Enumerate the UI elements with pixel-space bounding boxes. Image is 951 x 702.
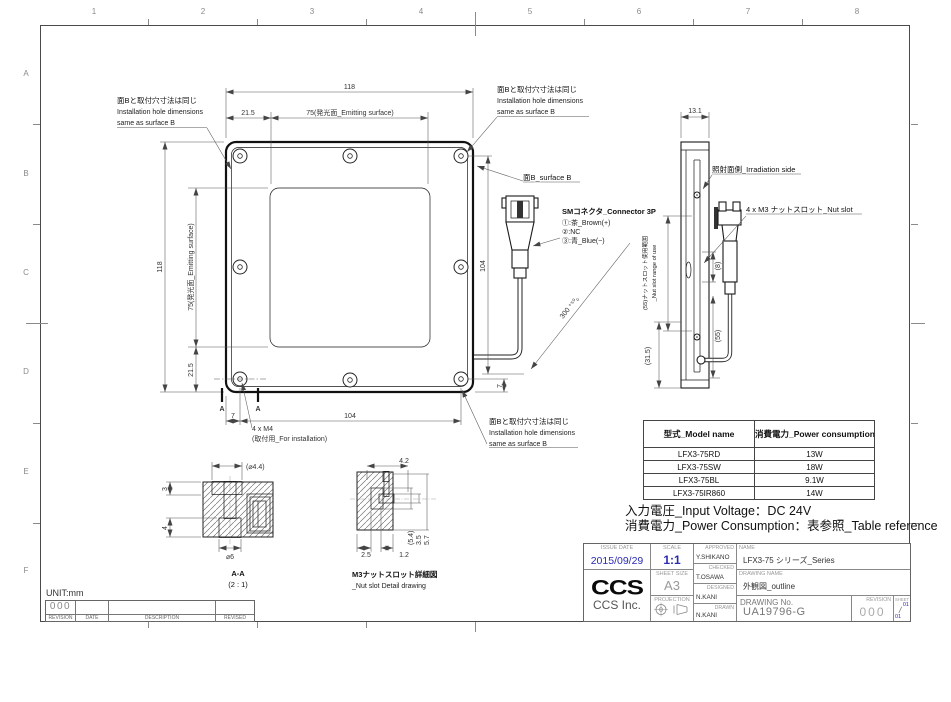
model-power-table: 型式_Model name 消費電力_Power consumption LFX… [643, 420, 875, 500]
aa-scale: (2 : 1) [228, 580, 248, 589]
revision-strip-labels: REVISION DATE DESCRIPTION REVISED [46, 615, 254, 622]
dim-height: 118 [157, 261, 164, 272]
connector-pin1: ①:茶_Brown(+) [562, 218, 610, 227]
title-block: ISSUE DATE 2015/09/29 CCS CCS Inc. SCALE… [583, 543, 911, 622]
input-voltage-note: 入力電圧_Input Voltage：DC 24V [625, 504, 938, 519]
power-consumption-note: 消費電力_Power Consumption：表参照_Table referen… [625, 519, 938, 534]
dim-height-offset: 21.5 [188, 363, 195, 377]
side-dim-8: (8) [715, 262, 722, 271]
sheet-size-cell: SHEET SIZE A3 [651, 570, 693, 596]
connector-pin3: ③:青_Blue(−) [562, 236, 605, 245]
note-tl-en1: Installation hole dimensions [117, 109, 203, 116]
dim-width: 118 [344, 84, 355, 91]
issue-date-label: ISSUE DATE [584, 545, 650, 551]
unit-label: UNIT:mm [46, 588, 84, 598]
note-tr-jp: 面Bと取付穴寸法は同じ [497, 84, 577, 94]
checked-cell: CHECKED T.OSAWA [694, 564, 736, 584]
drawing-sheet: 1 2 3 4 5 6 7 8 A B C D E F [0, 0, 951, 702]
revision-number: 000 [46, 601, 76, 614]
note-tr-en2: same as surface B [497, 109, 555, 116]
section-mark-a2: A [255, 406, 260, 413]
projection-icon [652, 601, 692, 620]
aa-title: A-A [231, 569, 245, 578]
nut-range-en: _Nut slot range of use [652, 245, 658, 303]
note-br-jp: 面Bと取付穴寸法は同じ [489, 416, 569, 426]
dim-hole-edge: 7 [231, 413, 235, 420]
section-mark-a1: A [219, 406, 224, 413]
section-aa-view: (⌀4.4) 3 4 ⌀6 A-A (2 : 1) [162, 462, 273, 589]
approved-cell: APPROVED Y.SHIKANO [694, 544, 736, 564]
scale-cell: SCALE 1:1 [651, 544, 693, 570]
model-name: LFX3-75SW [644, 461, 755, 474]
dim-cable-length: 300 ⁺⁵⁰₀ [558, 295, 581, 320]
designed-label: DESIGNED [707, 585, 734, 591]
drawing-name-cell: DRAWING NAME 外観図_outline [737, 570, 910, 596]
model-name: LFX3-75BL [644, 474, 755, 487]
table-row: LFX3-75IR860 14W [644, 487, 875, 500]
nut-dim-12: 1.2 [399, 552, 409, 559]
connector-pin2: ②:NC [562, 228, 580, 236]
drawn-value: N.KANI [696, 612, 717, 619]
note-br-en2: same as surface B [489, 441, 547, 448]
nut-detail-title-en: _Nut slot Detail drawing [351, 583, 426, 590]
drawing-no-cell: DRAWING No. UA19796-G [737, 596, 852, 621]
side-dim-315: (31.5) [645, 347, 652, 365]
revision-cell: REVISION 000 [852, 596, 894, 621]
sheet-cell: SHEET 01 / 01 [894, 596, 910, 621]
dim-emitting: 75(発光面_Emitting surface) [306, 108, 394, 117]
dim-emitting-v: 75(発光面_Emitting surface) [186, 223, 195, 311]
side-dim-55: (55) [715, 330, 722, 342]
dim-offset: 21.5 [241, 110, 255, 117]
aa-dim-cbore: (⌀4.4) [246, 464, 265, 471]
checked-value: T.OSAWA [696, 574, 724, 581]
approved-value: Y.SHIKANO [696, 554, 729, 561]
dim-right-edge: 7 [497, 384, 504, 388]
issue-date-value: 2015/09/29 [584, 555, 650, 567]
date-col-label: DATE [76, 615, 109, 622]
nut-dim-25: 2.5 [361, 552, 371, 559]
power-value: 18W [755, 461, 875, 474]
model-name: LFX3-75IR860 [644, 487, 755, 500]
irradiation-label: 照射面側_Irradiation side [712, 164, 795, 174]
approved-label: APPROVED [705, 545, 734, 551]
power-value: 13W [755, 448, 875, 461]
nut-detail-title-jp: M3ナットスロット詳細図 [352, 569, 438, 579]
table-row: LFX3-75BL 9.1W [644, 474, 875, 487]
sheet-size-label: SHEET SIZE [651, 571, 693, 577]
nut-slot-label: 4 x M3 ナットスロット_Nut slot [746, 205, 854, 214]
front-view [226, 142, 538, 392]
table-header-model: 型式_Model name [644, 421, 755, 448]
nut-range-jp: (55)ナットスロット使用範囲 [641, 236, 649, 310]
dim-right: 104 [480, 260, 487, 272]
scale-value: 1:1 [651, 553, 693, 567]
model-name: LFX3-75RD [644, 448, 755, 461]
table-header-power: 消費電力_Power consumption [755, 421, 875, 448]
m4-note-line2: (取付用_For installation) [252, 434, 327, 443]
ccs-logo: CCS [584, 576, 650, 597]
electrical-notes: 入力電圧_Input Voltage：DC 24V 消費電力_Power Con… [625, 504, 938, 533]
designed-value: N.KANI [696, 594, 717, 601]
name-value: LFX3-75 シリーズ_Series [743, 555, 835, 566]
revision-value: 000 [852, 605, 893, 619]
revision-date-value [76, 601, 109, 614]
m4-note-line1: 4 x M4 [252, 426, 273, 433]
projection-cell: PROJECTION [651, 596, 693, 621]
sheet-current: 01 [903, 602, 909, 608]
side-texts: 13.1 照射面側_Irradiation side 4 x M3 ナットスロッ… [641, 108, 854, 365]
company-name: CCS Inc. [584, 598, 650, 612]
note-tr-en1: Installation hole dimensions [497, 98, 583, 105]
revised-col-label: REVISED [216, 615, 254, 622]
issue-date-cell: ISSUE DATE 2015/09/29 [584, 544, 650, 570]
designed-cell: DESIGNED N.KANI [694, 584, 736, 604]
table-row: LFX3-75SW 18W [644, 461, 875, 474]
sheet-total: 01 [895, 614, 901, 620]
revision-strip: 000 REVISION DATE DESCRIPTION REVISED [45, 600, 255, 622]
revision-col-label: REVISION [46, 615, 76, 622]
aa-dim-4: 4 [162, 526, 169, 530]
table-row: LFX3-75RD 13W [644, 448, 875, 461]
drawing-no-value: UA19796-G [743, 606, 806, 618]
description-col-label: DESCRIPTION [109, 615, 216, 622]
nut-dim-42: 4.2 [399, 458, 409, 465]
cable-and-connector [474, 196, 538, 357]
sheet-size-value: A3 [651, 578, 693, 593]
nut-dim-54: (5.4) [408, 531, 415, 545]
drawn-cell: DRAWN N.KANI [694, 604, 736, 621]
revision-label: REVISION [866, 597, 891, 603]
titleblock-col-signoff: APPROVED Y.SHIKANO CHECKED T.OSAWA DESIG… [694, 544, 737, 621]
titleblock-col-scale: SCALE 1:1 SHEET SIZE A3 PROJECTION [651, 544, 694, 621]
side-view [681, 142, 741, 388]
connector-title: SMコネクタ_Connector 3P [562, 206, 656, 216]
revision-description-value [109, 601, 216, 614]
power-value: 14W [755, 487, 875, 500]
side-dim-width: 13.1 [688, 108, 702, 115]
drawing-no-row: DRAWING No. UA19796-G REVISION 000 SHEET… [737, 596, 910, 621]
dim-holes: 104 [344, 413, 356, 420]
revision-strip-values: 000 [46, 601, 254, 615]
aa-dim-6: ⌀6 [226, 554, 234, 561]
checked-label: CHECKED [709, 565, 734, 571]
nut-dim-57: 5.7 [424, 535, 431, 545]
scale-label: SCALE [651, 545, 693, 551]
name-cell: NAME LFX3-75 シリーズ_Series [737, 544, 910, 570]
drawing-name-label: DRAWING NAME [739, 571, 783, 577]
power-value: 9.1W [755, 474, 875, 487]
nut-dim-35: 3.5 [416, 535, 423, 545]
note-tl-jp: 面Bと取付穴寸法は同じ [117, 95, 197, 105]
drawing-name-value: 外観図_outline [743, 581, 795, 592]
drawn-label: DRAWN [715, 605, 734, 611]
name-label: NAME [739, 545, 755, 551]
note-tl-en2: same as surface B [117, 120, 175, 127]
revision-revised-value [216, 601, 254, 614]
surface-b-label: 面B_surface B [523, 173, 571, 182]
aa-dim-3: 3 [162, 487, 169, 491]
company-cell: CCS CCS Inc. [584, 570, 650, 621]
titleblock-col-issue: ISSUE DATE 2015/09/29 CCS CCS Inc. [584, 544, 651, 621]
note-br-en1: Installation hole dimensions [489, 430, 575, 437]
nut-slot-detail-view: 4.2 (5.4) 3.5 5.7 2.5 1.2 M3ナットスロット詳細図 _… [350, 458, 438, 590]
titleblock-col-name: NAME LFX3-75 シリーズ_Series DRAWING NAME 外観… [737, 544, 910, 621]
